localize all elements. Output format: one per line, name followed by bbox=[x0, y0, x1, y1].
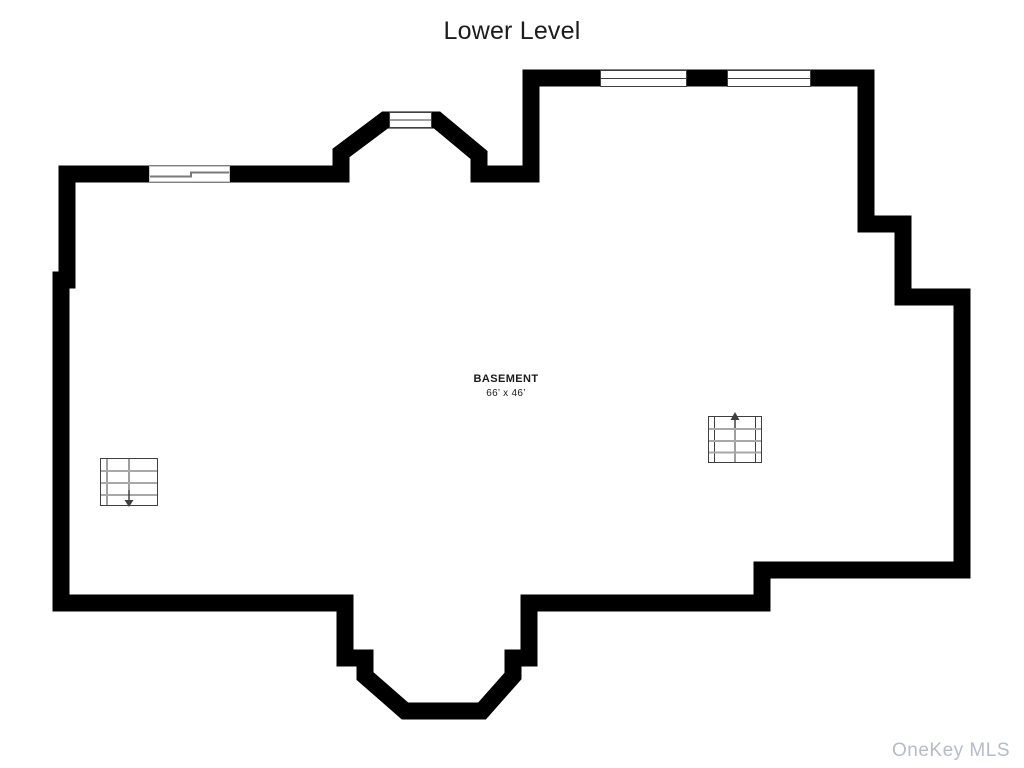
bay-window-icon bbox=[390, 113, 432, 128]
sliding-door-icon bbox=[150, 167, 230, 182]
room-name: BASEMENT bbox=[376, 373, 636, 385]
watermark: OneKey MLS bbox=[892, 740, 1010, 762]
stairs-up-icon bbox=[709, 412, 762, 463]
room-label: BASEMENT 66’ x 46’ bbox=[376, 373, 636, 399]
window-icon bbox=[728, 71, 811, 87]
room-dimensions: 66’ x 46’ bbox=[376, 388, 636, 399]
stairs-down-icon bbox=[101, 459, 158, 508]
window-icon bbox=[601, 71, 687, 87]
